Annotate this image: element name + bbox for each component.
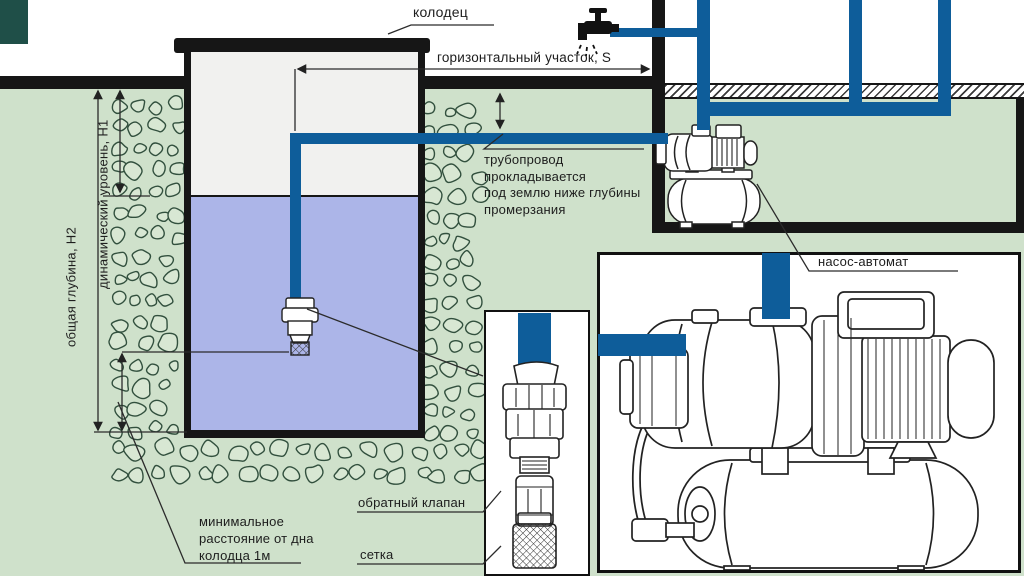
stone xyxy=(114,208,129,220)
strainer-label: сетка xyxy=(360,547,393,563)
well-interior xyxy=(190,52,419,197)
stone xyxy=(466,365,479,376)
well-cap xyxy=(174,38,430,53)
stone xyxy=(158,333,177,352)
stone xyxy=(423,273,438,285)
detail-outlet-pipe xyxy=(762,253,790,319)
stone xyxy=(128,427,142,439)
stone xyxy=(443,319,462,333)
stone xyxy=(167,425,179,435)
stone xyxy=(157,212,169,221)
stone xyxy=(455,444,469,456)
stone xyxy=(461,409,475,420)
stone xyxy=(149,186,162,197)
stone xyxy=(446,108,456,116)
stone xyxy=(440,361,457,377)
stone xyxy=(283,467,300,481)
dynamic-level-label: динамический уровень, Н1 xyxy=(94,104,112,304)
stone xyxy=(170,163,184,175)
well-bottom xyxy=(184,430,425,438)
stone xyxy=(456,144,474,161)
stone xyxy=(447,259,460,269)
well-wall-right xyxy=(418,52,425,437)
stone xyxy=(132,250,150,265)
stone xyxy=(110,427,123,438)
well-label: колодец xyxy=(413,4,468,20)
stone xyxy=(115,275,127,284)
horizontal-section-label: горизонтальный участок, S xyxy=(437,50,611,66)
well-to-house-pipe xyxy=(290,133,668,144)
stone xyxy=(444,214,460,229)
stone xyxy=(159,380,170,390)
stone xyxy=(130,360,143,372)
detail-inlet-pipe xyxy=(598,334,686,356)
stone xyxy=(425,236,437,246)
stone xyxy=(130,188,141,200)
check-valve-label: обратный клапан xyxy=(358,495,465,511)
basement-right-wall xyxy=(1016,98,1024,224)
stone xyxy=(460,251,473,267)
stone xyxy=(270,440,288,457)
stone xyxy=(113,441,125,453)
stone xyxy=(153,161,165,177)
stone xyxy=(374,469,387,479)
stone xyxy=(338,447,351,458)
stone xyxy=(251,442,265,455)
stone xyxy=(387,468,405,485)
stone xyxy=(151,316,167,332)
stone xyxy=(424,404,438,416)
stone xyxy=(124,445,145,461)
stone xyxy=(442,296,457,309)
stone xyxy=(427,210,439,224)
stone xyxy=(147,364,159,375)
stone xyxy=(131,100,145,112)
stone xyxy=(113,291,126,304)
check-valve-strainer-illustration xyxy=(484,310,590,576)
stone xyxy=(151,226,164,239)
stone xyxy=(467,296,482,309)
stone xyxy=(453,236,469,251)
well-valve-small-illustration xyxy=(278,296,322,358)
stone xyxy=(444,274,456,286)
stone xyxy=(127,272,139,281)
stone xyxy=(112,469,128,481)
stone xyxy=(139,336,154,350)
stone xyxy=(112,100,127,114)
stone xyxy=(467,429,478,438)
stone xyxy=(450,341,463,352)
riser-pipe-2 xyxy=(849,0,862,110)
stone xyxy=(113,183,127,196)
pump-station-label: насос-автомат xyxy=(818,254,908,270)
stone xyxy=(412,447,427,460)
stone xyxy=(128,468,143,483)
stone xyxy=(134,144,146,153)
stone xyxy=(159,256,173,267)
pump-station-large-illustration xyxy=(600,255,1018,570)
stone xyxy=(443,407,455,417)
stone xyxy=(168,145,179,156)
stone xyxy=(112,376,128,391)
stone xyxy=(455,471,470,484)
stone xyxy=(444,146,456,157)
ground-line-left xyxy=(0,76,186,89)
stone xyxy=(150,400,167,415)
stone xyxy=(148,118,166,132)
stone xyxy=(133,316,147,329)
stone xyxy=(445,386,461,401)
stone xyxy=(463,275,481,290)
stone xyxy=(384,443,402,461)
stone xyxy=(127,402,146,416)
stone xyxy=(149,102,162,115)
stone xyxy=(434,444,447,458)
stone xyxy=(199,467,213,480)
stone xyxy=(424,426,439,441)
riser-pipe-1 xyxy=(697,0,710,130)
stone xyxy=(334,468,348,480)
stone xyxy=(130,295,140,305)
stone xyxy=(170,466,190,484)
riser-pipe-3 xyxy=(938,0,951,115)
stone xyxy=(128,122,142,136)
stone xyxy=(111,320,128,332)
stone xyxy=(229,446,248,461)
stone xyxy=(109,332,126,349)
stone xyxy=(168,208,184,224)
stone xyxy=(124,162,142,180)
stone xyxy=(140,272,157,287)
stone xyxy=(112,142,128,156)
stone xyxy=(360,442,377,457)
stone xyxy=(458,213,475,227)
ground-line-right xyxy=(422,76,653,89)
stone xyxy=(111,227,125,244)
stone xyxy=(164,269,179,283)
stone xyxy=(260,465,278,481)
stones-right-band xyxy=(420,102,489,441)
stone xyxy=(440,426,457,441)
stone xyxy=(423,187,442,204)
stones-bottom-band xyxy=(112,438,490,485)
stone xyxy=(168,96,182,110)
stone xyxy=(180,446,198,462)
faucet-supply-pipe xyxy=(610,28,710,37)
stone xyxy=(315,444,330,461)
well-wall-left xyxy=(184,52,191,437)
stone xyxy=(158,295,173,307)
stone xyxy=(456,103,476,118)
stone xyxy=(466,321,483,334)
pump-station-small-illustration xyxy=(656,112,772,230)
stone xyxy=(201,440,218,456)
stone xyxy=(296,444,310,455)
well-drop-pipe xyxy=(290,133,301,305)
stone xyxy=(439,233,449,243)
stone xyxy=(306,465,323,483)
stone xyxy=(448,189,466,205)
stone xyxy=(423,255,441,270)
stone xyxy=(155,438,174,456)
house-floor-hatch xyxy=(665,83,1024,99)
stone xyxy=(470,342,482,352)
total-depth-label: общая глубина, Н2 xyxy=(62,182,80,392)
stone xyxy=(239,466,258,481)
stone xyxy=(128,205,146,217)
house-interior xyxy=(665,0,1024,84)
stone xyxy=(169,361,178,371)
stone xyxy=(442,164,460,182)
pipe-note-label: трубопровод прокладывается под землю ниж… xyxy=(484,152,640,218)
stone xyxy=(110,359,123,371)
stone xyxy=(112,252,127,266)
stone xyxy=(149,143,162,156)
stone xyxy=(212,465,228,483)
stone xyxy=(149,421,162,432)
stone xyxy=(166,183,180,196)
well-water-supply-diagram: колодец горизонтальный участок, S трубоп… xyxy=(0,0,1024,576)
stone xyxy=(135,228,147,238)
min-distance-label: минимальное расстояние от дна колодца 1м xyxy=(199,513,314,564)
stone xyxy=(113,119,128,131)
stone xyxy=(146,294,157,306)
stone xyxy=(349,465,365,480)
stones-left-band xyxy=(109,96,189,440)
stone xyxy=(132,378,150,398)
stone xyxy=(423,317,440,330)
stone xyxy=(152,466,165,479)
